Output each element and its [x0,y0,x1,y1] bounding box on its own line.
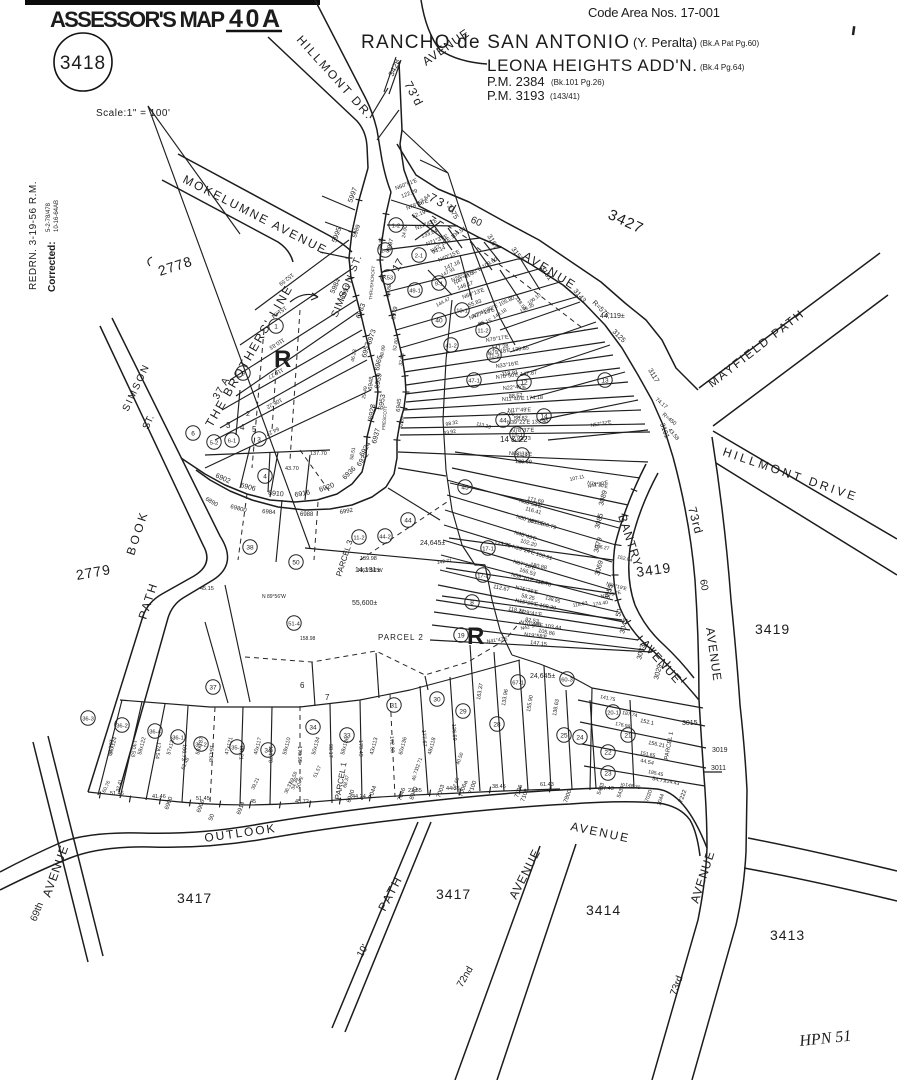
svg-text:LEONA HEIGHTS ADD'N.: LEONA HEIGHTS ADD'N. [487,56,697,75]
svg-text:P.M. 3193: P.M. 3193 [487,88,545,103]
svg-text:7: 7 [325,693,330,702]
svg-text:6-1: 6-1 [228,439,236,445]
svg-text:ASSESSOR'S MAP: ASSESSOR'S MAP [50,7,225,32]
svg-text:44,119±: 44,119± [600,313,625,320]
svg-text:1-2: 1-2 [392,224,400,230]
svg-text:PARCEL 2: PARCEL 2 [378,633,424,642]
svg-text:177.67: 177.67 [420,730,427,747]
svg-text:55,600±: 55,600± [352,600,377,607]
svg-text:(143/41): (143/41) [550,92,580,101]
svg-text:124.70: 124.70 [267,746,273,763]
svg-text:22: 22 [604,750,612,757]
svg-text:N78°37'E: N78°37'E [511,428,535,434]
svg-text:24,645±: 24,645± [530,673,555,680]
svg-text:45.72: 45.72 [295,799,309,805]
svg-text:50: 50 [292,560,300,567]
svg-text:P.M. 2384: P.M. 2384 [487,74,545,89]
svg-text:3417: 3417 [436,886,471,902]
svg-text:9: 9 [241,371,245,378]
svg-text:44-2: 44-2 [379,535,391,541]
svg-text:RANCHO de SAN ANTONIO: RANCHO de SAN ANTONIO [361,32,629,53]
svg-text:4: 4 [240,423,245,432]
svg-text:61.43: 61.43 [540,782,554,788]
svg-text:Scale:1" = 100': Scale:1" = 100' [96,108,170,119]
svg-text:179.49: 179.49 [357,740,363,757]
svg-text:41.46: 41.46 [152,794,166,800]
svg-text:23.85: 23.85 [408,788,422,794]
svg-text:10-16-64AB: 10-16-64AB [54,200,60,232]
svg-text:N 89°56'W: N 89°56'W [262,594,286,600]
svg-text:5-2: 5-2 [210,441,218,447]
svg-text:24: 24 [576,735,584,742]
svg-text:2-1: 2-1 [415,254,423,260]
svg-text:20-1: 20-1 [607,711,619,717]
svg-text:28: 28 [493,722,501,729]
svg-text:N39°22'E 133.80: N39°22'E 133.80 [507,419,549,426]
svg-text:(Bk.A Pat Pg.60): (Bk.A Pat Pg.60) [700,39,759,48]
svg-text:43.70: 43.70 [285,466,299,472]
svg-text:139.98: 139.98 [360,556,377,562]
svg-text:6: 6 [191,431,195,438]
svg-text:31: 31 [390,703,398,710]
svg-text:164.68: 164.68 [207,745,214,762]
svg-text:29: 29 [459,709,467,716]
svg-text:5-2-78/478: 5-2-78/478 [46,202,52,232]
svg-text:23: 23 [604,771,612,778]
svg-text:N68°33'E: N68°33'E [509,451,533,458]
svg-text:47-1: 47-1 [468,379,480,385]
svg-text:24,645±: 24,645± [420,540,445,547]
svg-text:3414: 3414 [586,902,621,918]
svg-text:98.17: 98.17 [327,744,333,758]
svg-text:30: 30 [433,697,441,704]
svg-text:6988: 6988 [300,512,314,518]
svg-text:44: 44 [499,418,507,425]
svg-text:51.45: 51.45 [196,796,210,802]
svg-text:6984: 6984 [262,509,276,516]
svg-text:6948: 6948 [368,376,375,390]
svg-text:3011: 3011 [711,765,726,772]
svg-text:10-1: 10-1 [456,309,468,315]
svg-text:(Bk.4 Pg.64): (Bk.4 Pg.64) [700,63,745,72]
svg-text:44: 44 [404,518,412,525]
svg-text:38: 38 [246,545,254,552]
svg-text:25: 25 [560,733,568,740]
svg-text:K53: K53 [383,276,393,282]
svg-text:3019: 3019 [712,747,728,754]
svg-text:3015: 3015 [682,720,698,727]
svg-text:40A: 40A [229,5,280,33]
svg-text:137.70: 137.70 [310,451,327,457]
svg-text:34: 34 [309,725,317,732]
svg-text:Code Area Nos. 17-001: Code Area Nos. 17-001 [588,5,720,20]
svg-text:(Y. Peralta): (Y. Peralta) [633,35,697,50]
svg-text:172.83: 172.83 [388,736,395,753]
svg-text:60-3: 60-3 [561,678,573,684]
svg-text:158.98: 158.98 [300,636,316,642]
svg-text:1: 1 [274,324,278,331]
svg-text:36-4: 36-4 [149,730,161,736]
svg-text:6945: 6945 [396,398,403,412]
svg-text:98.21: 98.21 [238,746,244,760]
svg-text:179.95: 179.95 [296,746,302,763]
svg-text:45.15: 45.15 [200,586,214,592]
svg-text:3: 3 [257,437,261,444]
svg-text:126.59: 126.59 [450,724,457,741]
svg-text:49-1: 49-1 [409,289,421,295]
svg-text:3413: 3413 [770,927,805,943]
svg-text:40: 40 [435,318,443,325]
svg-text:4: 4 [263,474,267,481]
svg-text:36-2: 36-2 [116,724,128,730]
svg-text:44.24: 44.24 [352,794,366,800]
svg-text:3419: 3419 [755,621,790,637]
svg-text:3417: 3417 [177,890,212,906]
svg-text:REDRN. 3-19-56 R.M.: REDRN. 3-19-56 R.M. [28,181,39,290]
svg-text:(Bk.101 Pg.26): (Bk.101 Pg.26) [551,78,605,87]
svg-text:41-2: 41-2 [445,344,457,350]
svg-text:11-2: 11-2 [477,329,488,335]
svg-text:Corrected:: Corrected: [47,241,58,292]
svg-text:6: 6 [300,681,305,690]
svg-text:36-3: 36-3 [82,717,94,723]
svg-text:37: 37 [209,685,217,692]
svg-text:19: 19 [457,633,465,640]
svg-text:5: 5 [252,425,257,434]
svg-text:17-1: 17-1 [482,547,494,553]
svg-text:14 & 22: 14 & 22 [500,435,528,444]
svg-text:3418: 3418 [60,53,106,74]
svg-text:21: 21 [624,733,632,740]
svg-text:38.45: 38.45 [492,784,506,790]
svg-text:N63°56'W: N63°56'W [358,568,383,574]
svg-text:11-2: 11-2 [353,536,364,542]
svg-text:67-1: 67-1 [512,681,524,687]
svg-text:51-4: 51-4 [288,622,300,628]
